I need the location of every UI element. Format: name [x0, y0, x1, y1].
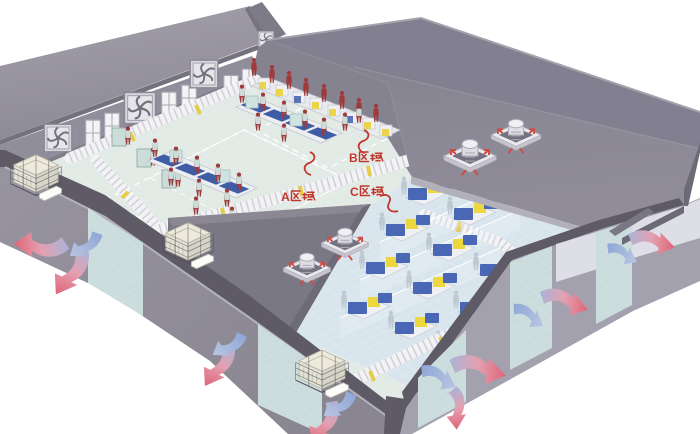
- svg-text:C: C: [350, 185, 359, 199]
- svg-text:A: A: [281, 190, 290, 204]
- svg-text:B: B: [349, 151, 358, 165]
